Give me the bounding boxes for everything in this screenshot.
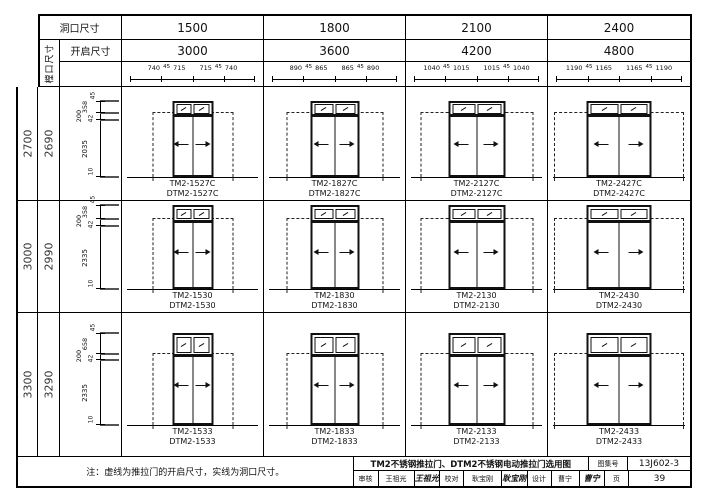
transom — [591, 104, 648, 113]
door-cell: TM2-2433DTM2-2433 — [548, 313, 690, 456]
title-row: TM2不锈钢推拉门、DTM2不锈钢电动推拉门选用图 图集号 13J602-3 — [354, 457, 691, 471]
design-label: 设计 — [527, 471, 551, 486]
hole-height-label: 3000 — [18, 201, 38, 312]
opening-width-value: 3000 — [122, 40, 263, 62]
check-name: 耿宝刚 — [463, 471, 501, 486]
vent-mark-icon — [342, 212, 348, 216]
transom-pane — [194, 104, 210, 113]
table-header: 洞口尺寸 1500 1800 2100 2400 樘口尺寸 开启尺寸 3000 … — [18, 16, 690, 87]
frame-height-label: 2690 — [38, 87, 60, 200]
hole-height-label: 3300 — [18, 313, 38, 456]
vent-mark-icon — [181, 107, 187, 111]
hole-width-value: 2400 — [548, 16, 690, 40]
vent-mark-icon — [601, 343, 607, 347]
review-signature: 王祖光 — [414, 471, 440, 486]
slide-left-arrow-icon — [596, 144, 609, 145]
check-label: 校对 — [439, 471, 463, 486]
door-cell: TM2-2130DTM2-2130 — [406, 201, 548, 312]
hole-height-label: 2700 — [18, 87, 38, 200]
header-notch — [16, 14, 40, 87]
width-dim-line: 11904511651165451190 — [548, 62, 690, 87]
door-model-labels: TM2-2433DTM2-2433 — [548, 427, 690, 447]
ground-line — [269, 425, 400, 426]
slide-right-arrow-icon — [196, 385, 209, 386]
leaf-divider — [334, 117, 335, 175]
door-elevation — [448, 101, 505, 177]
door-model-labels: TM2-1827CDTM2-1827C — [264, 179, 405, 199]
hole-width-row: 洞口尺寸 1500 1800 2100 2400 — [18, 16, 690, 40]
vent-mark-icon — [198, 343, 204, 347]
transom — [591, 337, 648, 354]
door-model-labels: TM2-2130DTM2-2130 — [406, 291, 547, 311]
ground-line — [411, 425, 542, 426]
dimension-line — [272, 79, 397, 80]
vent-mark-icon — [631, 212, 637, 216]
vent-mark-icon — [321, 343, 327, 347]
vent-mark-icon — [486, 212, 492, 216]
transom-pane — [176, 209, 192, 219]
transom — [314, 104, 355, 113]
slide-left-arrow-icon — [315, 252, 328, 253]
transom-pane — [336, 337, 356, 354]
transom-pane — [591, 209, 619, 219]
grid-row-3000: 3000 2990 4535820042233510 TM2-1530DTM2-… — [18, 201, 690, 313]
leaf-divider — [192, 357, 193, 423]
door-elevation — [172, 205, 213, 289]
vent-mark-icon — [321, 107, 327, 111]
vent-mark-icon — [601, 212, 607, 216]
door-model-labels: TM2-1830DTM2-1830 — [264, 291, 405, 311]
check-signature: 耿宝刚 — [501, 471, 527, 486]
slide-left-arrow-icon — [175, 252, 188, 253]
leaf-divider — [192, 117, 193, 175]
door-elevation — [587, 205, 652, 289]
ground-line — [553, 289, 685, 290]
transom-pane — [478, 104, 502, 113]
ground-line — [411, 177, 542, 178]
transom-pane — [452, 209, 476, 219]
hole-width-value: 2100 — [406, 16, 548, 40]
transom — [176, 104, 209, 113]
vent-mark-icon — [342, 343, 348, 347]
transom-pane — [452, 104, 476, 113]
frame-height-label: 2990 — [38, 201, 60, 312]
door-elevation — [448, 205, 505, 289]
column-1500-header: 3000 7404571571545740 — [122, 40, 264, 87]
sheet-title: TM2不锈钢推拉门、DTM2不锈钢电动推拉门选用图 — [354, 457, 589, 470]
grid-row-2700: 2700 2690 4535820042203510 TM2-1527CDTM2… — [18, 87, 690, 201]
atlas-no-label: 图集号 — [588, 457, 627, 470]
door-elevation — [172, 333, 213, 425]
design-name: 曹宁 — [551, 471, 579, 486]
door-elevation — [172, 101, 213, 177]
door-cell: TM2-1833DTM2-1833 — [264, 313, 406, 456]
door-cell: TM2-1530DTM2-1530 — [122, 201, 264, 312]
leaf-divider — [334, 223, 335, 287]
transom-pane — [194, 337, 210, 354]
slide-left-arrow-icon — [175, 144, 188, 145]
door-cell: TM2-1827CDTM2-1827C — [264, 87, 406, 200]
width-dim-line: 8904586586545890 — [264, 62, 405, 87]
review-label: 审核 — [354, 471, 378, 486]
vent-mark-icon — [198, 107, 204, 111]
slide-right-arrow-icon — [484, 144, 497, 145]
slide-left-arrow-icon — [455, 252, 468, 253]
slide-right-arrow-icon — [628, 385, 641, 386]
hole-size-label: 洞口尺寸 — [38, 16, 122, 40]
vent-mark-icon — [461, 343, 467, 347]
opening-width-rows: 樘口尺寸 开启尺寸 3000 7404571571545740 3600 890… — [18, 40, 690, 87]
transom — [452, 104, 501, 113]
hole-width-value: 1800 — [264, 16, 406, 40]
vent-mark-icon — [181, 212, 187, 216]
dimension-line — [556, 79, 682, 80]
transom — [314, 337, 355, 354]
grid-row-3300: 3300 3290 4565820042233510 TM2-1533DTM2-… — [18, 313, 690, 457]
slide-left-arrow-icon — [455, 385, 468, 386]
transom — [452, 209, 501, 219]
design-signature: 曹宁 — [579, 471, 605, 486]
door-cell: TM2-2133DTM2-2133 — [406, 313, 548, 456]
door-elevation — [587, 101, 652, 177]
vertical-dim-strip: 4535820042233510 — [60, 201, 122, 312]
opening-width-value: 3600 — [264, 40, 405, 62]
vent-mark-icon — [486, 107, 492, 111]
leaf-divider — [619, 357, 620, 423]
vent-mark-icon — [181, 343, 187, 347]
transom-pane — [591, 337, 619, 354]
transom-pane — [620, 337, 648, 354]
ground-line — [553, 177, 685, 178]
atlas-no-value: 13J602-3 — [627, 457, 690, 470]
frame-height-label: 3290 — [38, 313, 60, 456]
vent-mark-icon — [631, 343, 637, 347]
transom-pane — [478, 209, 502, 219]
leaf-divider — [476, 117, 477, 175]
hole-width-value: 1500 — [122, 16, 264, 40]
leaf-divider — [476, 223, 477, 287]
door-cell: TM2-2127CDTM2-2127C — [406, 87, 548, 200]
vertical-dim-strip: 4535820042203510 — [60, 87, 122, 200]
ground-line — [269, 289, 400, 290]
door-elevation — [310, 205, 359, 289]
transom-pane — [314, 104, 334, 113]
vertical-dim-strip: 4565820042233510 — [60, 313, 122, 456]
vent-mark-icon — [461, 212, 467, 216]
door-cell: TM2-2430DTM2-2430 — [548, 201, 690, 312]
transom — [314, 209, 355, 219]
opening-width-value: 4800 — [548, 40, 690, 62]
door-model-labels: TM2-2127CDTM2-2127C — [406, 179, 547, 199]
transom-pane — [314, 337, 334, 354]
slide-right-arrow-icon — [340, 144, 353, 145]
slide-left-arrow-icon — [596, 385, 609, 386]
column-2400-header: 4800 11904511651165451190 — [548, 40, 690, 87]
door-model-labels: TM2-2427CDTM2-2427C — [548, 179, 690, 199]
transom-pane — [620, 209, 648, 219]
drawing-sheet: 洞口尺寸 1500 1800 2100 2400 樘口尺寸 开启尺寸 3000 … — [0, 0, 710, 500]
transom — [176, 209, 209, 219]
column-1800-header: 3600 8904586586545890 — [264, 40, 406, 87]
vent-mark-icon — [321, 212, 327, 216]
slide-right-arrow-icon — [628, 144, 641, 145]
door-cell: TM2-1533DTM2-1533 — [122, 313, 264, 456]
door-cell: TM2-1527CDTM2-1527C — [122, 87, 264, 200]
page-label: 页 — [604, 471, 628, 486]
vent-mark-icon — [198, 212, 204, 216]
transom-pane — [176, 337, 192, 354]
opening-width-value: 4200 — [406, 40, 547, 62]
selection-table: 洞口尺寸 1500 1800 2100 2400 樘口尺寸 开启尺寸 3000 … — [16, 14, 692, 488]
slide-left-arrow-icon — [596, 252, 609, 253]
door-cell: TM2-1830DTM2-1830 — [264, 201, 406, 312]
slide-right-arrow-icon — [340, 385, 353, 386]
vent-mark-icon — [486, 343, 492, 347]
door-cell: TM2-2427CDTM2-2427C — [548, 87, 690, 200]
slide-right-arrow-icon — [484, 252, 497, 253]
ground-line — [553, 425, 685, 426]
ground-line — [127, 425, 258, 426]
column-2100-header: 4200 10404510151015451040 — [406, 40, 548, 87]
transom — [591, 209, 648, 219]
slide-right-arrow-icon — [196, 144, 209, 145]
transom-pane — [452, 337, 476, 354]
vent-mark-icon — [342, 107, 348, 111]
leaf-divider — [334, 357, 335, 423]
door-model-labels: TM2-1527CDTM2-1527C — [122, 179, 263, 199]
review-name: 王祖光 — [378, 471, 414, 486]
slide-right-arrow-icon — [340, 252, 353, 253]
note-text: 注：虚线为推拉门的开启尺寸，实线为洞口尺寸。 — [18, 457, 354, 486]
door-model-labels: TM2-2133DTM2-2133 — [406, 427, 547, 447]
slide-right-arrow-icon — [196, 252, 209, 253]
door-model-labels: TM2-2430DTM2-2430 — [548, 291, 690, 311]
bottom-band: 注：虚线为推拉门的开启尺寸，实线为洞口尺寸。 TM2不锈钢推拉门、DTM2不锈钢… — [18, 457, 690, 486]
transom-pane — [314, 209, 334, 219]
door-elevation — [448, 333, 505, 425]
door-elevation — [310, 101, 359, 177]
ground-line — [411, 289, 542, 290]
leaf-divider — [192, 223, 193, 287]
door-elevation — [587, 333, 652, 425]
door-model-labels: TM2-1833DTM2-1833 — [264, 427, 405, 447]
slide-right-arrow-icon — [628, 252, 641, 253]
dimension-line — [130, 79, 255, 80]
door-model-labels: TM2-1530DTM2-1530 — [122, 291, 263, 311]
width-dim-line: 10404510151015451040 — [406, 62, 547, 87]
vent-mark-icon — [601, 107, 607, 111]
title-block: TM2不锈钢推拉门、DTM2不锈钢电动推拉门选用图 图集号 13J602-3 审… — [354, 457, 691, 486]
slide-left-arrow-icon — [455, 144, 468, 145]
transom-pane — [336, 104, 356, 113]
transom-pane — [194, 209, 210, 219]
dimension-line — [414, 79, 539, 80]
door-elevation — [310, 333, 359, 425]
signature-row: 审核 王祖光 王祖光 校对 耿宝刚 耿宝刚 设计 曹宁 曹宁 页 39 — [354, 471, 691, 486]
transom-pane — [620, 104, 648, 113]
slide-left-arrow-icon — [175, 385, 188, 386]
ground-line — [127, 289, 258, 290]
door-model-labels: TM2-1533DTM2-1533 — [122, 427, 263, 447]
transom — [176, 337, 209, 354]
transom — [452, 337, 501, 354]
ground-line — [127, 177, 258, 178]
transom-pane — [176, 104, 192, 113]
slide-right-arrow-icon — [484, 385, 497, 386]
transom-pane — [591, 104, 619, 113]
width-dim-line: 7404571571545740 — [122, 62, 263, 87]
page-number: 39 — [628, 471, 690, 486]
vent-mark-icon — [461, 107, 467, 111]
slide-left-arrow-icon — [315, 144, 328, 145]
slide-left-arrow-icon — [315, 385, 328, 386]
frame-size-vertical-label: 樘口尺寸 — [38, 40, 60, 87]
leaf-divider — [476, 357, 477, 423]
vent-mark-icon — [631, 107, 637, 111]
leaf-divider — [619, 117, 620, 175]
opening-size-label: 开启尺寸 — [60, 40, 121, 62]
transom-pane — [478, 337, 502, 354]
transom-pane — [336, 209, 356, 219]
leaf-divider — [619, 223, 620, 287]
ground-line — [269, 177, 400, 178]
